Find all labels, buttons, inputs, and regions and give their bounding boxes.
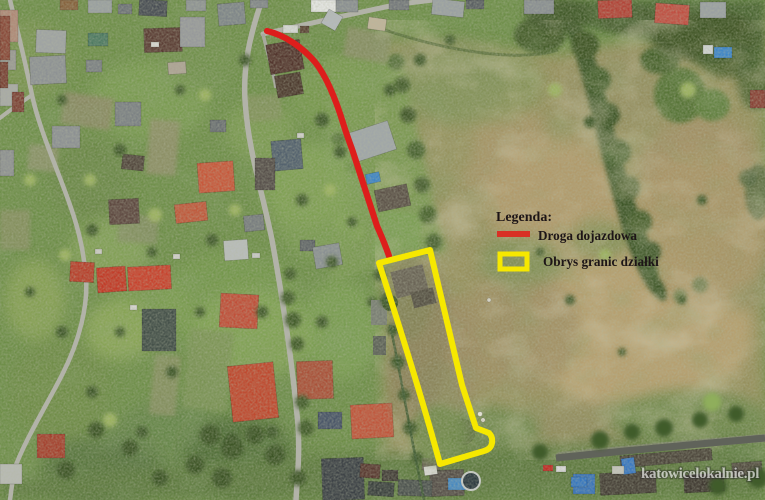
svg-text:Obrys granic działki: Obrys granic działki [543,254,659,269]
svg-text:katowicelokalnie.pl: katowicelokalnie.pl [641,466,759,482]
svg-text:Legenda:: Legenda: [496,210,552,225]
svg-text:Droga dojazdowa: Droga dojazdowa [538,228,637,243]
